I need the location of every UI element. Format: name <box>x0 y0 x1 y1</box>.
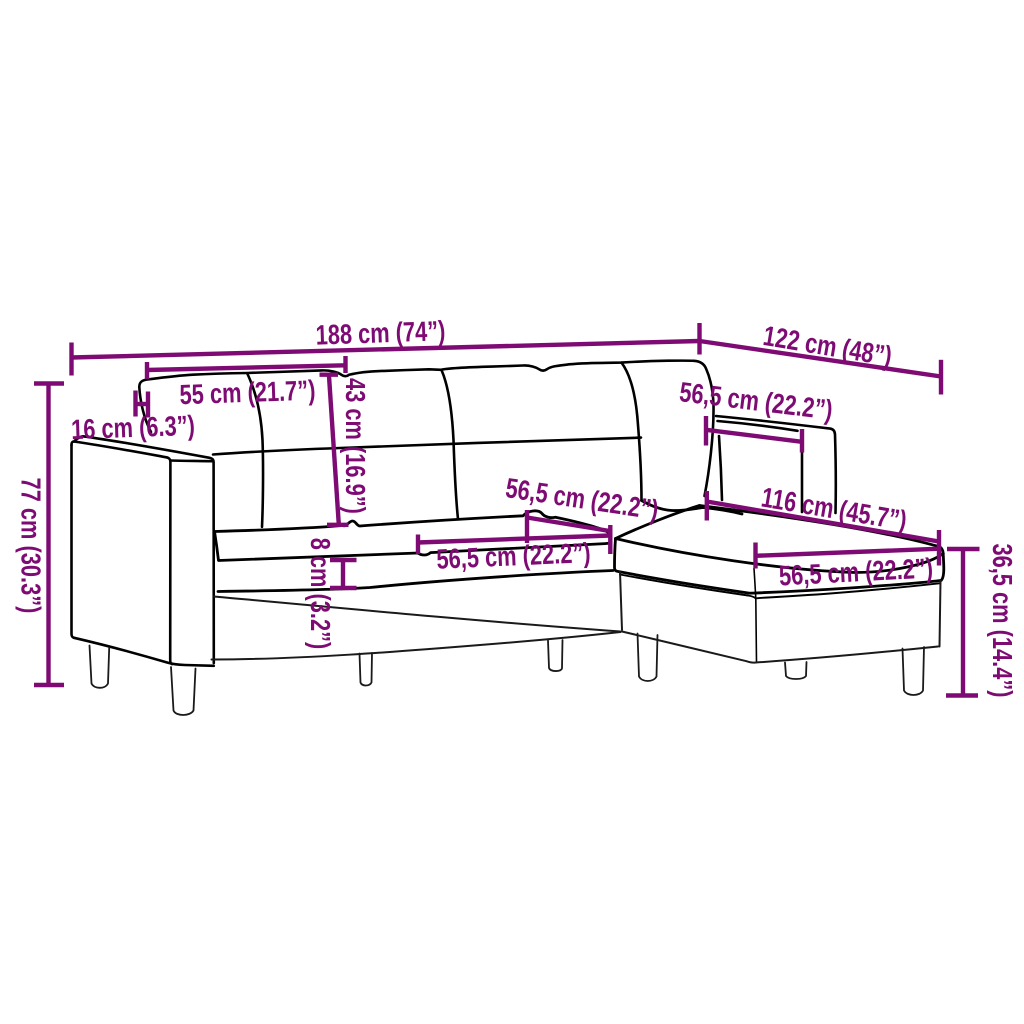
svg-text:43 cm (16.9”): 43 cm (16.9”) <box>339 378 370 514</box>
svg-text:16 cm (6.3”): 16 cm (6.3”) <box>71 410 196 446</box>
svg-text:77 cm (30.3”): 77 cm (30.3”) <box>15 478 46 614</box>
svg-text:188 cm (74”): 188 cm (74”) <box>315 316 446 352</box>
svg-text:36,5 cm (14.4”): 36,5 cm (14.4”) <box>986 543 1017 697</box>
svg-text:55 cm (21.7”): 55 cm (21.7”) <box>179 375 316 411</box>
svg-text:8 cm (3.2”): 8 cm (3.2”) <box>304 538 335 650</box>
